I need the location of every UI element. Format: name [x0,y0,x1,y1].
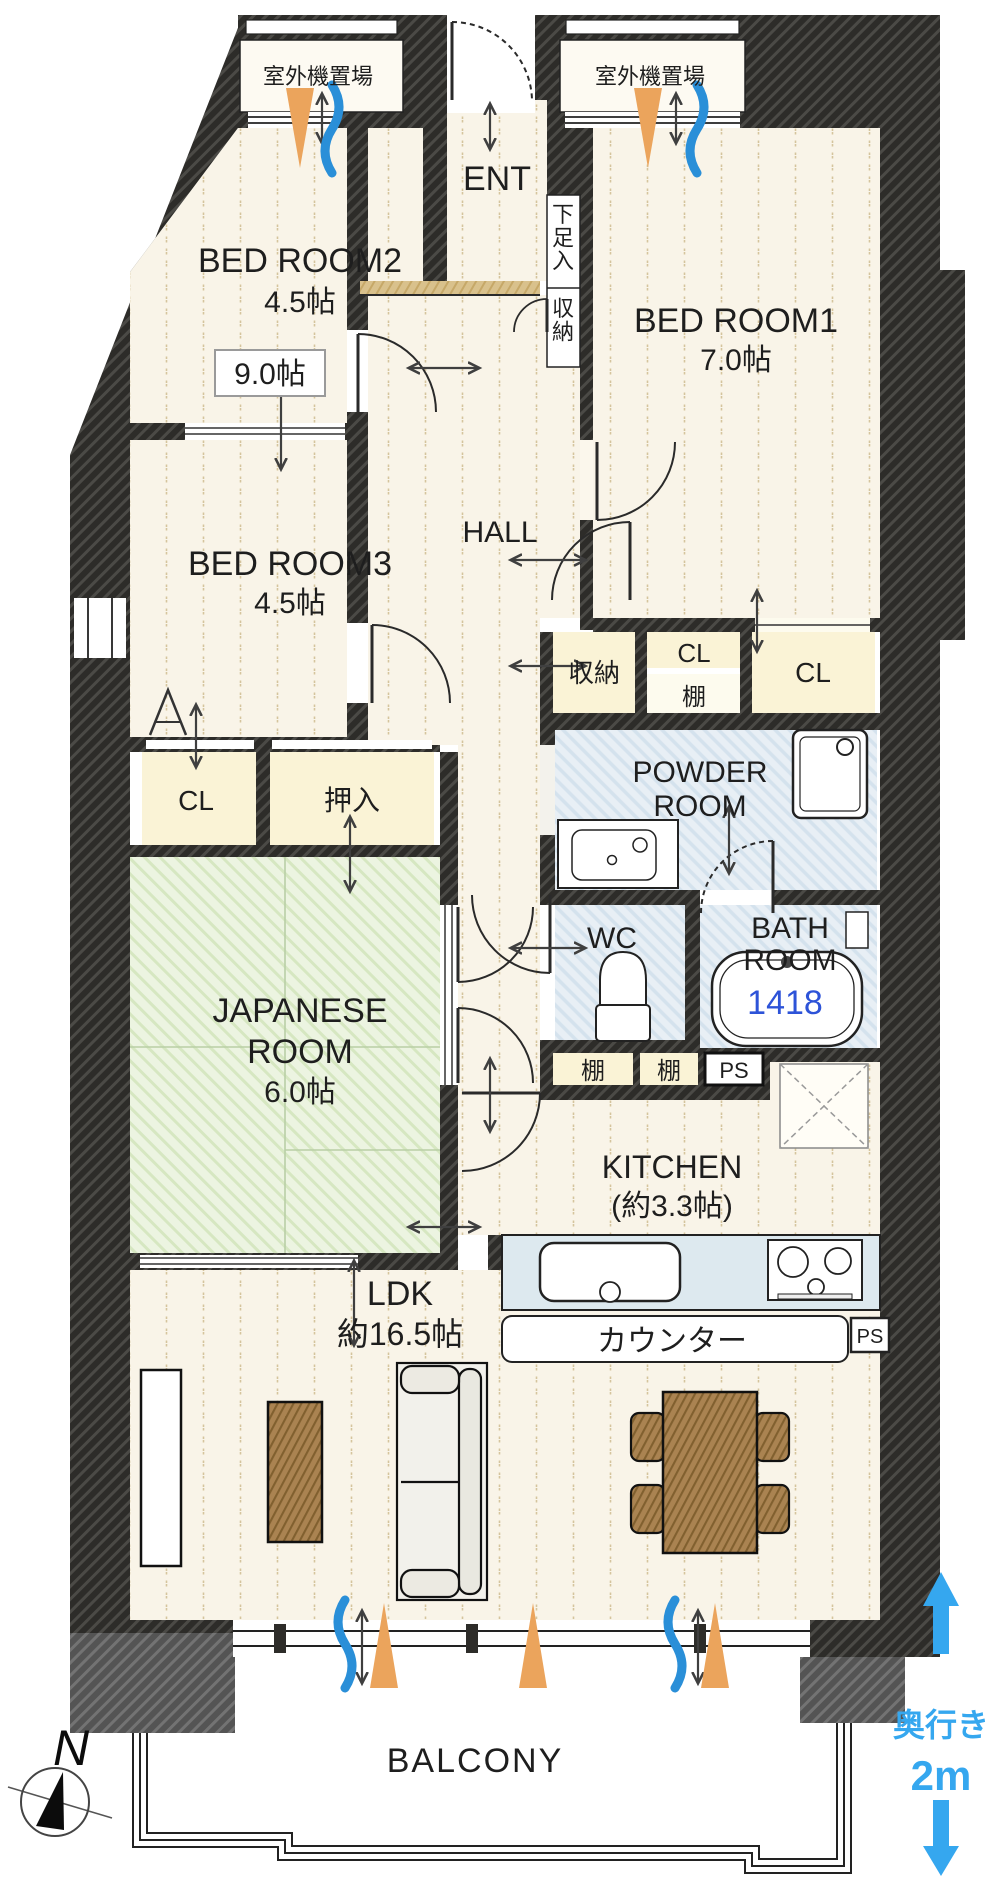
ps2-label: PS [857,1326,884,1348]
ldk-label: LDK [367,1275,433,1313]
kitchen-label: KITCHEN [602,1149,742,1185]
compass [8,1768,112,1836]
japanese-size: 6.0帖 [264,1076,336,1109]
bedroom3-size: 4.5帖 [254,587,326,620]
compass-n-label: N [53,1720,90,1776]
japanese-line2: ROOM [247,1033,353,1071]
bedroom1-label: BED ROOM1 [634,302,838,340]
compass-needle [36,1772,64,1830]
hall-storage-label: 収納 [568,658,620,688]
hall-label: HALL [462,516,537,549]
shoe-box-label: 下足入 [552,202,574,274]
outdoor-left-label: 室外機置場 [263,64,373,89]
bedroom2-size: 4.5帖 [264,286,336,319]
kitchen-size: (約3.3帖) [611,1190,733,1223]
shelf2-label: 棚 [657,1058,681,1085]
powder-line2: ROOM [653,790,746,823]
ldk-size: 約16.5帖 [337,1316,463,1352]
shelf1-label: 棚 [581,1058,605,1085]
coffee-table [268,1402,322,1542]
balcony-label: BALCONY [387,1742,564,1780]
bath-line2: ROOM [743,944,836,977]
bath-line1: BATH [751,912,829,945]
floor-plan-page: 室外機置場 室外機置場 ENT 下足入 収納 BED ROOM2 4.5帖 9.… [0,0,1000,1876]
cl-bedroom3-label: CL [178,785,214,816]
sofa [397,1363,487,1600]
bedroom2-label: BED ROOM2 [198,242,402,280]
oshiire-label: 押入 [324,785,380,816]
shelf-hall-label: 棚 [682,684,706,711]
bedroom1-size: 7.0帖 [700,344,772,377]
wc-label: WC [587,922,637,955]
ent-label: ENT [463,160,531,198]
floor-plan-drawing: 室外機置場 室外機置場 ENT 下足入 収納 BED ROOM2 4.5帖 9.… [0,0,1000,1876]
bedroom3-label: BED ROOM3 [188,545,392,583]
ps1-label: PS [719,1058,748,1083]
japanese-line1: JAPANESE [212,992,387,1030]
tv-board [141,1370,181,1566]
ent-storage-label: 収納 [552,296,574,344]
counter-label: カウンター [597,1325,747,1358]
cl-hall-label: CL [677,638,710,668]
powder-line1: POWDER [633,756,768,789]
outdoor-right-label: 室外機置場 [595,64,705,89]
combined-size-label: 9.0帖 [234,358,306,391]
depth-value: 2m [911,1752,972,1799]
depth-label: 奥行き [893,1707,989,1743]
cl-bedroom1-label: CL [795,657,831,688]
bath-tub-size: 1418 [747,984,823,1022]
